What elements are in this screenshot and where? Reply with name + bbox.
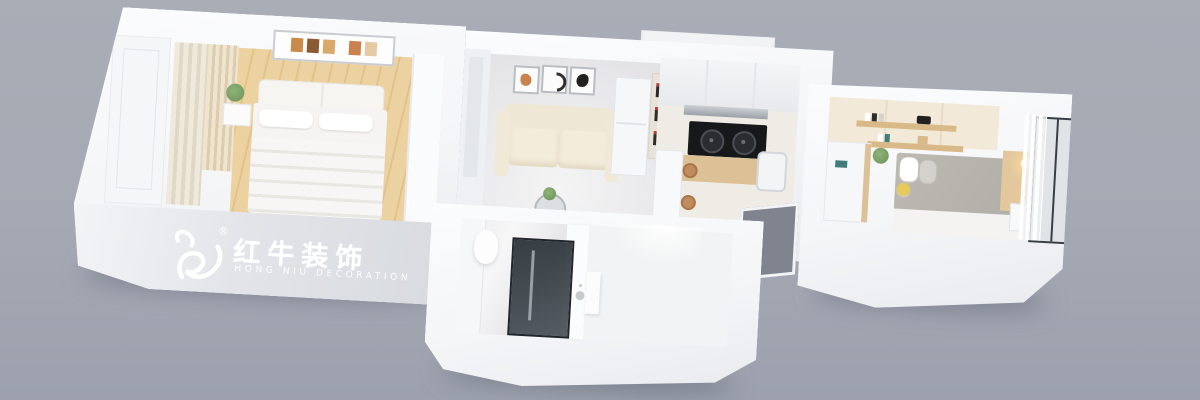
- sofa-armrest: [494, 110, 512, 177]
- burner: [732, 130, 757, 155]
- towel: [584, 272, 600, 315]
- bathroom-block: [422, 203, 763, 399]
- second-bedroom-interior: [823, 97, 1054, 241]
- balcony-panel: [104, 35, 171, 206]
- window-mullion: [1050, 120, 1059, 242]
- hanging-plant: [872, 147, 889, 164]
- pillow: [318, 112, 373, 132]
- art-swatch: [307, 39, 320, 54]
- master-bedroom-block: ® 红牛装饰 HONG NIU DECORATION: [69, 5, 466, 306]
- desk: [823, 141, 871, 223]
- fridge-door-seam: [616, 122, 646, 126]
- cream-sofa: [500, 103, 616, 191]
- kitchen-upper-cabinets: [658, 57, 800, 113]
- apartment-3d-model: ® 红牛装饰 HONG NIU DECORATION: [8, 2, 1168, 400]
- burner: [700, 129, 725, 154]
- kitchen-sink: [756, 151, 788, 193]
- teal-notebook: [835, 160, 847, 168]
- balcony-panel-inset: [116, 48, 160, 190]
- bed-duvet: [248, 137, 386, 220]
- sliding-door: [463, 57, 484, 178]
- art-swatch: [365, 42, 378, 57]
- book: [865, 113, 870, 121]
- art-swatch: [291, 38, 304, 53]
- wall-frame-black-blob-art: [569, 66, 597, 95]
- book: [878, 134, 883, 142]
- nightstand: [222, 103, 251, 127]
- gas-cooktop: [687, 121, 767, 159]
- bathroom-interior: [455, 218, 733, 347]
- apartment-render-scene: ® 红牛装饰 HONG NIU DECORATION: [0, 0, 1200, 400]
- book: [872, 113, 877, 121]
- desk-wood-edge: [861, 144, 871, 222]
- ceiling-light-glow: [609, 223, 701, 268]
- book: [885, 134, 890, 142]
- shower-glass-partition: [507, 237, 574, 338]
- art-swatch: [323, 39, 336, 54]
- registered-trademark-symbol: ®: [216, 225, 231, 240]
- book: [917, 136, 927, 145]
- sofa-cushion: [558, 130, 610, 171]
- cabinet-seam: [704, 60, 709, 108]
- wall-frame-hand-art: [513, 65, 541, 94]
- bedroom-curtains: [166, 42, 209, 206]
- book: [879, 114, 884, 122]
- wall-frame-arc-art: [541, 65, 569, 94]
- pillow: [899, 157, 918, 182]
- art-swatch: [349, 41, 362, 56]
- second-bedroom-block: [796, 80, 1072, 318]
- gray-pillow: [919, 160, 936, 183]
- fridge-tall-cabinet: [610, 77, 651, 177]
- sofa-cushion: [508, 127, 560, 168]
- decor-object: [917, 116, 931, 125]
- shower-door-handle-bar: [528, 250, 535, 320]
- pillow: [258, 109, 313, 129]
- cabinet-seam: [752, 63, 757, 111]
